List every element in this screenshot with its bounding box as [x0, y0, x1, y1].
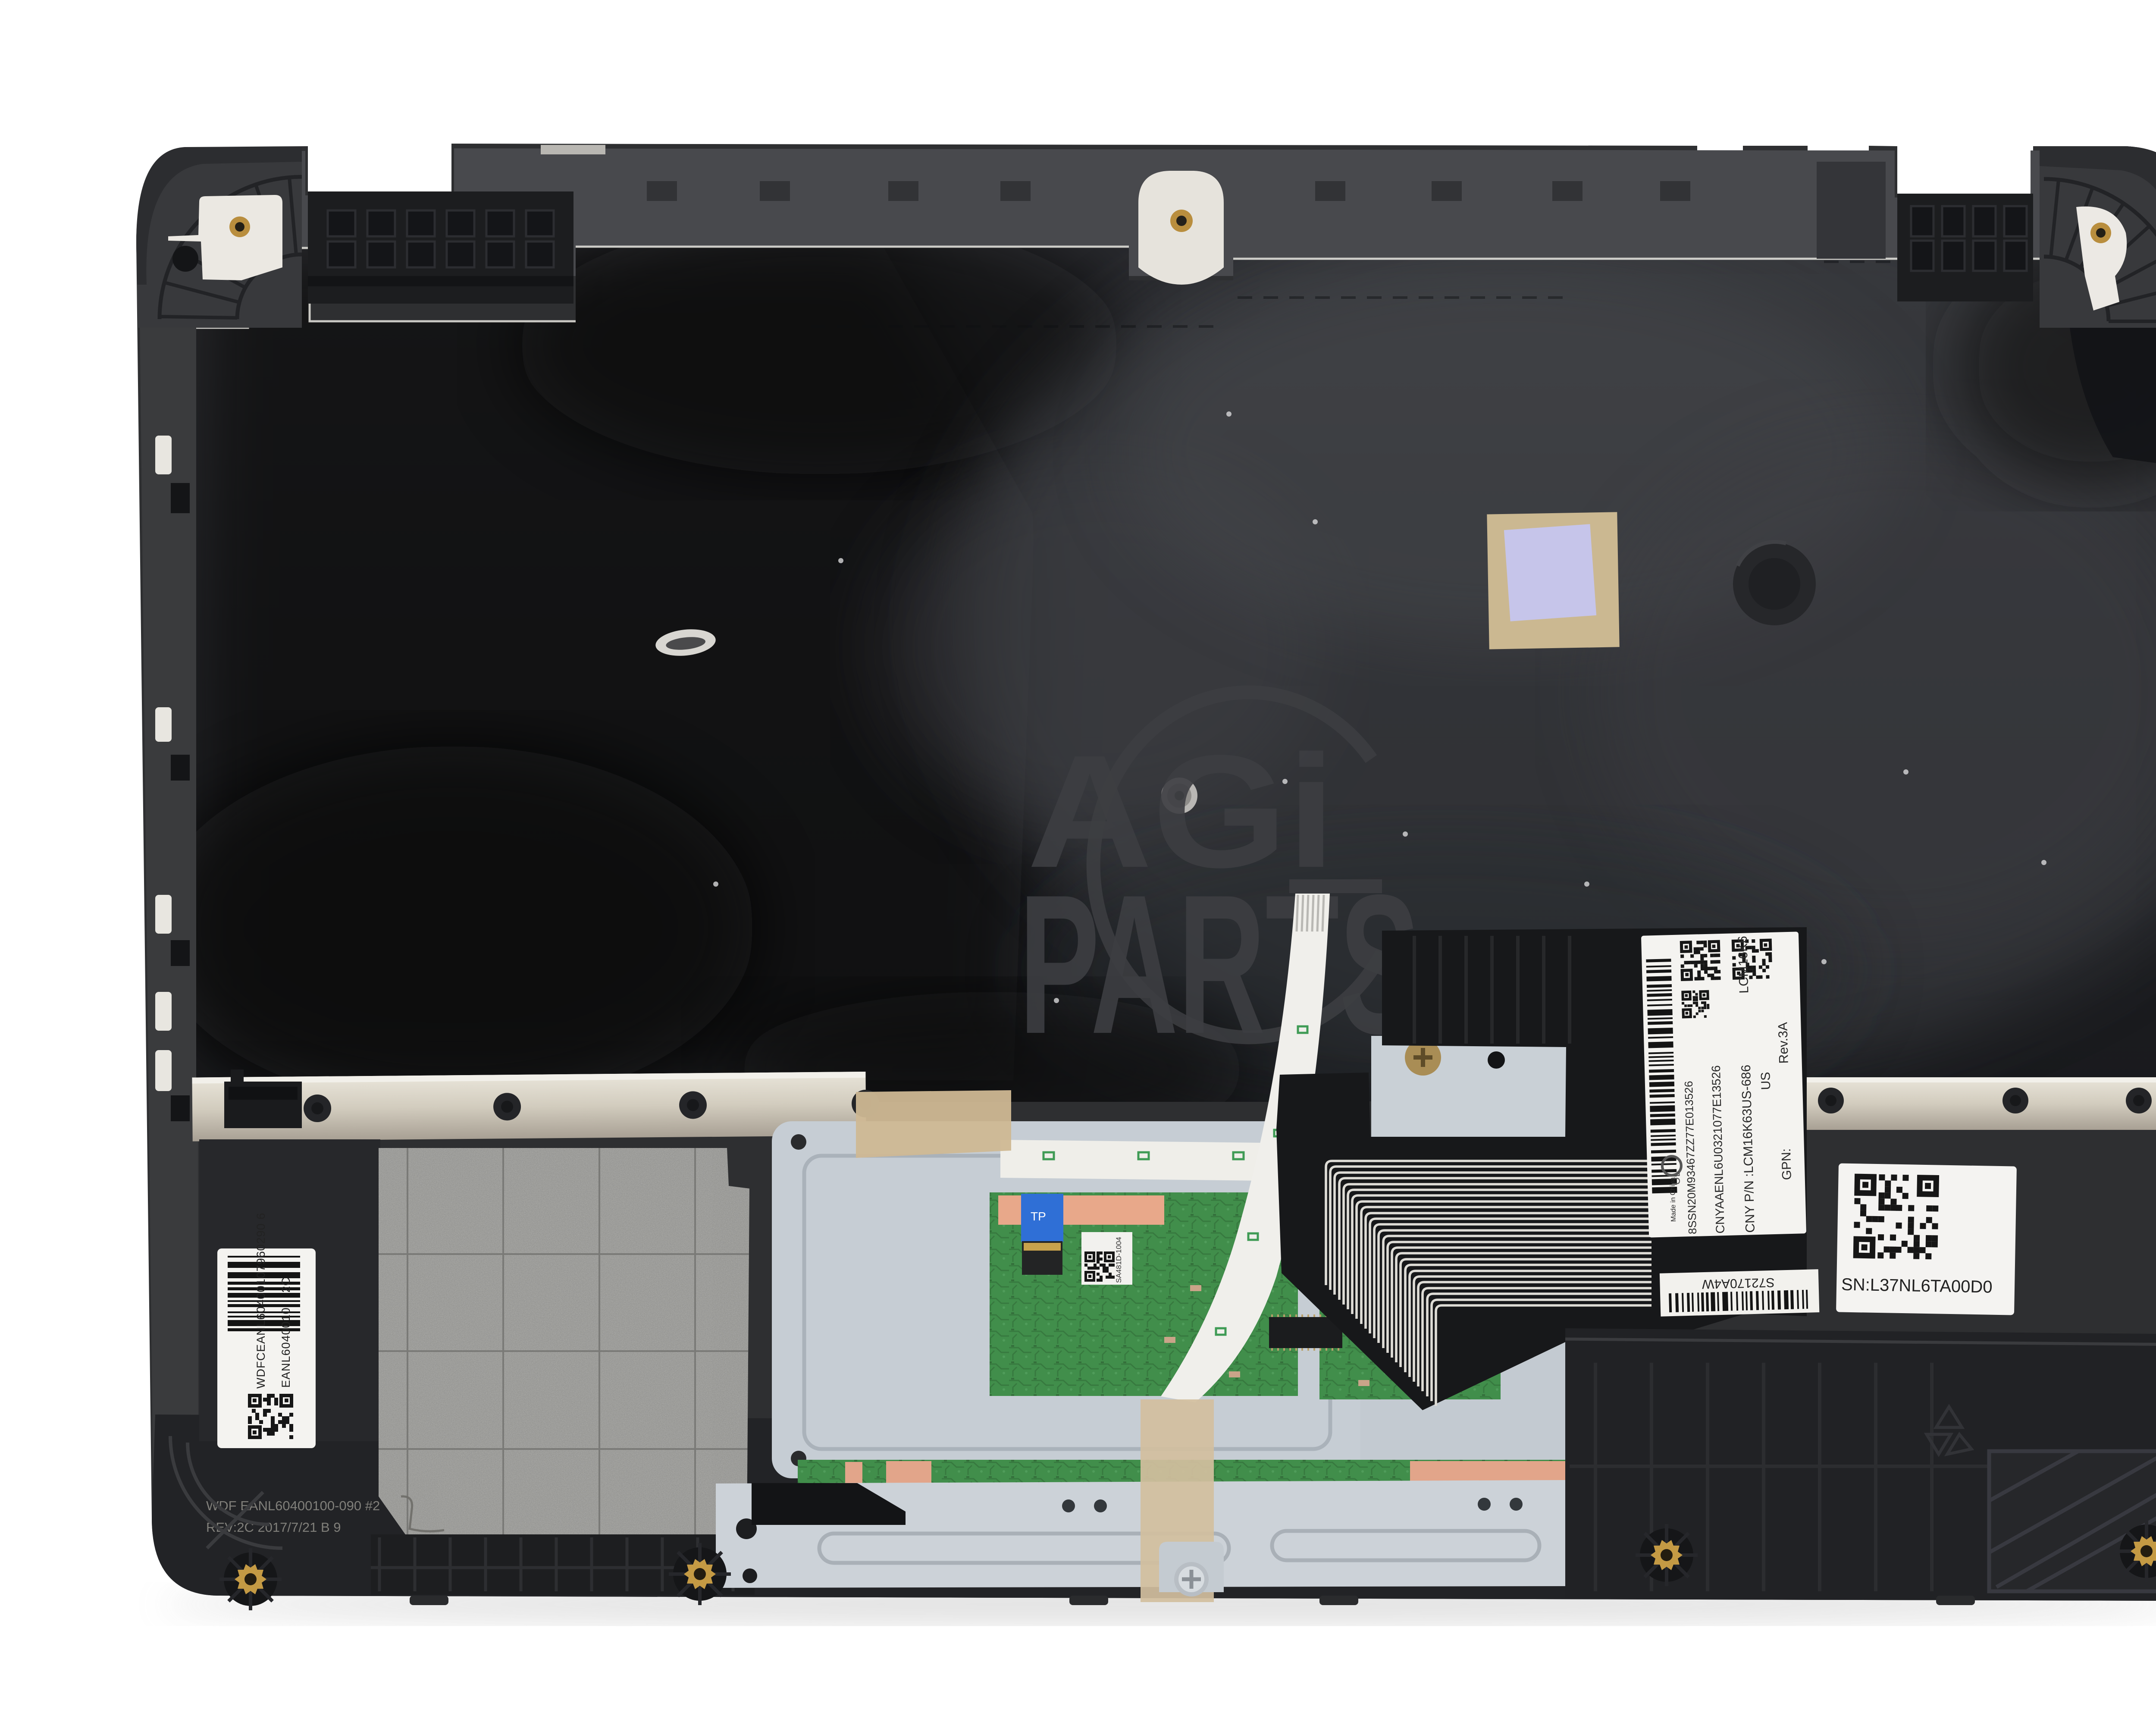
- svg-text:WDF EANL60400100-090 #2: WDF EANL60400100-090 #2: [206, 1498, 380, 1513]
- svg-text:EANL6040010 2C: EANL6040010 2C: [279, 1277, 292, 1388]
- svg-text:Rev.3A: Rev.3A: [1776, 1022, 1791, 1064]
- svg-text:SA481D-1004: SA481D-1004: [1115, 1237, 1123, 1283]
- svg-text:GPN:: GPN:: [1779, 1148, 1794, 1180]
- svg-text:WDFCEANL60400107960290 6: WDFCEANL60400107960290 6: [254, 1213, 267, 1389]
- svg-text:US: US: [1758, 1072, 1773, 1090]
- svg-text:UL: UL: [1669, 1170, 1683, 1185]
- svg-text:S72170A4W: S72170A4W: [1702, 1275, 1775, 1291]
- svg-text:SN:L37NL6TA00D0: SN:L37NL6TA00D0: [1841, 1275, 1993, 1297]
- svg-text:LCM16K6: LCM16K6: [1736, 936, 1751, 994]
- svg-text:TP: TP: [1031, 1210, 1046, 1223]
